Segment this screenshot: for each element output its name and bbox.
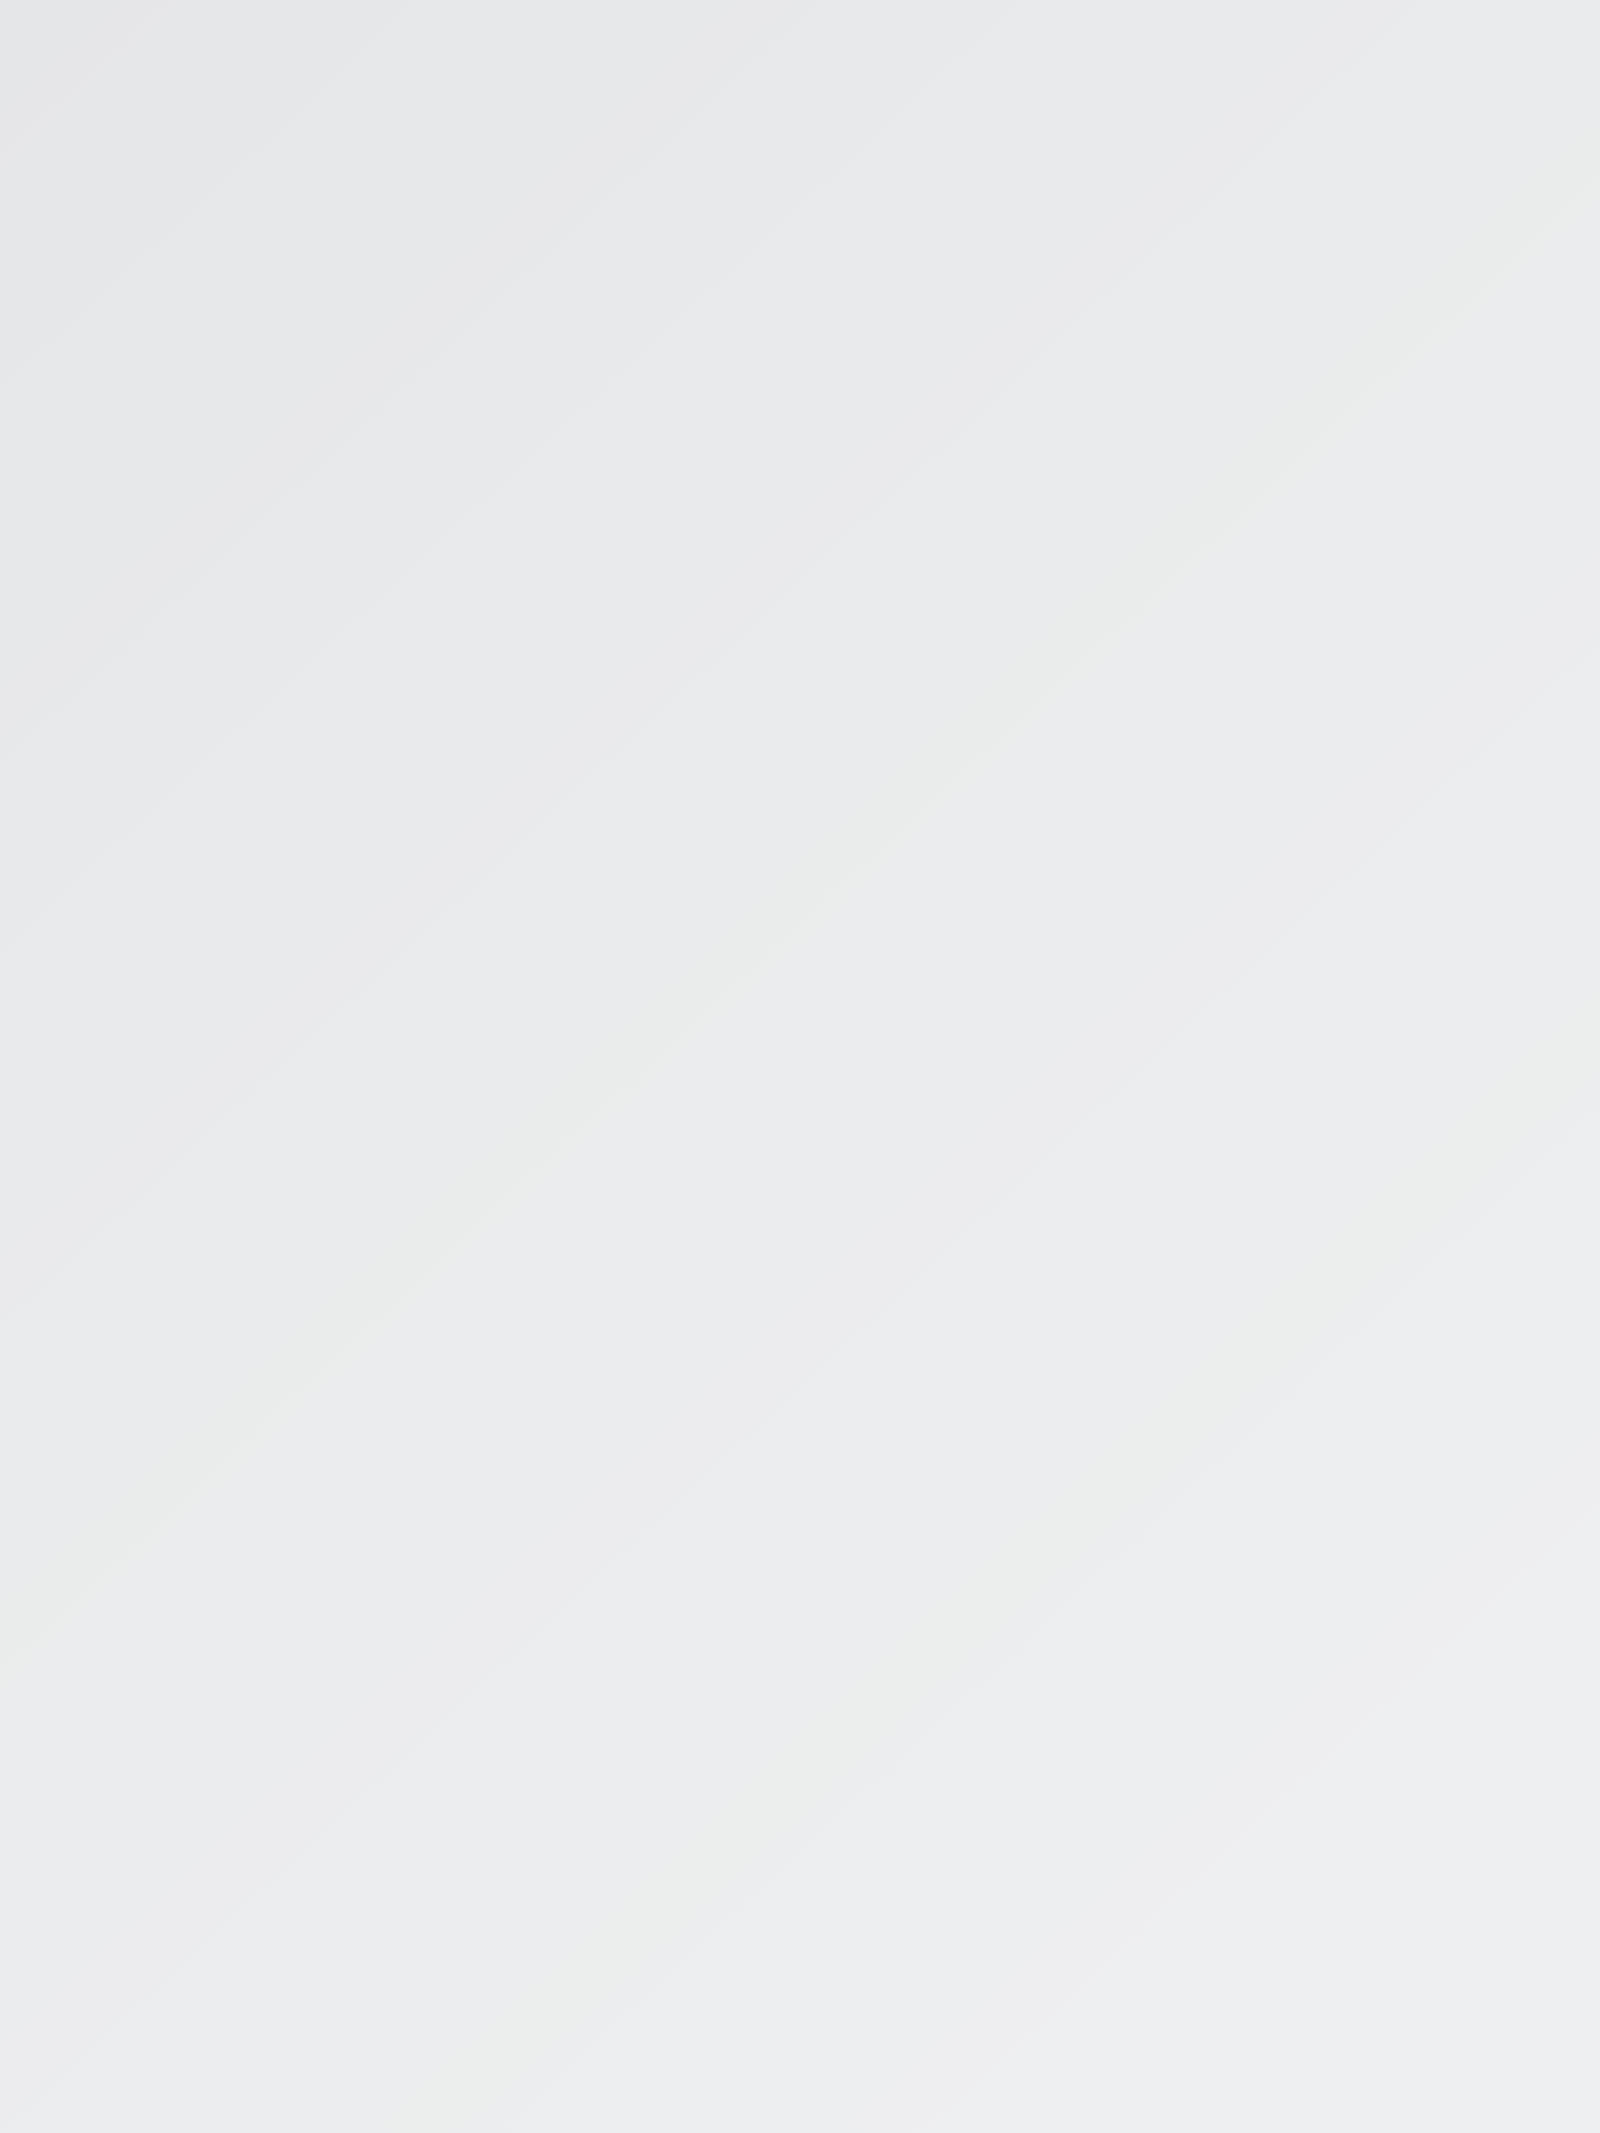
ruler-photo-canvas xyxy=(0,0,1600,2133)
background xyxy=(0,0,1600,2133)
product-photo-hexagon-ruler xyxy=(0,0,1600,2133)
